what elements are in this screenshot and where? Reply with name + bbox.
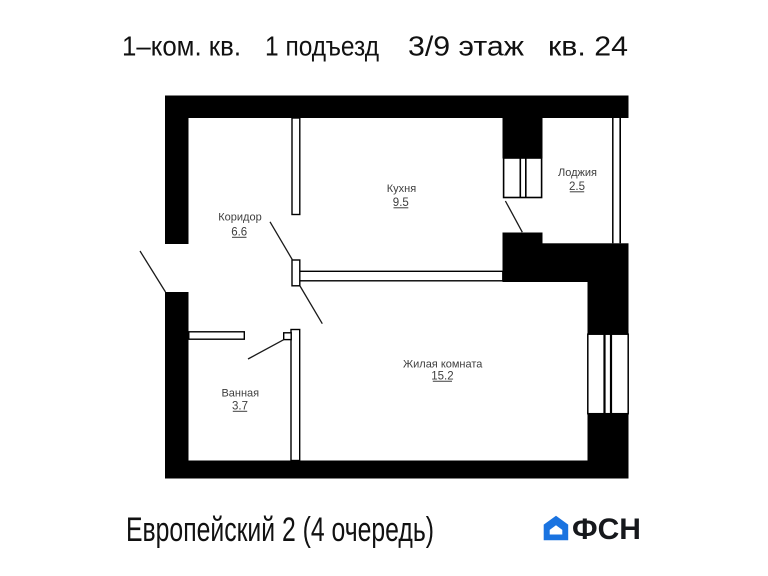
svg-text:Жилая комната: Жилая комната: [403, 358, 483, 370]
svg-text:3.7: 3.7: [232, 400, 248, 412]
svg-text:1–ком. кв.: 1–ком. кв.: [122, 31, 241, 62]
svg-text:кв. 24: кв. 24: [548, 31, 628, 62]
svg-text:15.2: 15.2: [431, 370, 453, 382]
svg-text:6.6: 6.6: [231, 227, 247, 239]
svg-text:9.5: 9.5: [393, 197, 409, 209]
svg-text:1 подъезд: 1 подъезд: [265, 31, 379, 62]
svg-text:Коридор: Коридор: [218, 212, 261, 224]
svg-text:Европейский 2 (4 очередь): Европейский 2 (4 очередь): [126, 511, 434, 549]
svg-text:Лоджия: Лоджия: [558, 167, 597, 179]
svg-text:2.5: 2.5: [569, 181, 585, 193]
svg-text:Ванная: Ванная: [221, 388, 259, 400]
svg-text:3/9 этаж: 3/9 этаж: [408, 31, 524, 62]
svg-text:ФСН: ФСН: [572, 513, 641, 546]
svg-text:Кухня: Кухня: [387, 183, 416, 195]
